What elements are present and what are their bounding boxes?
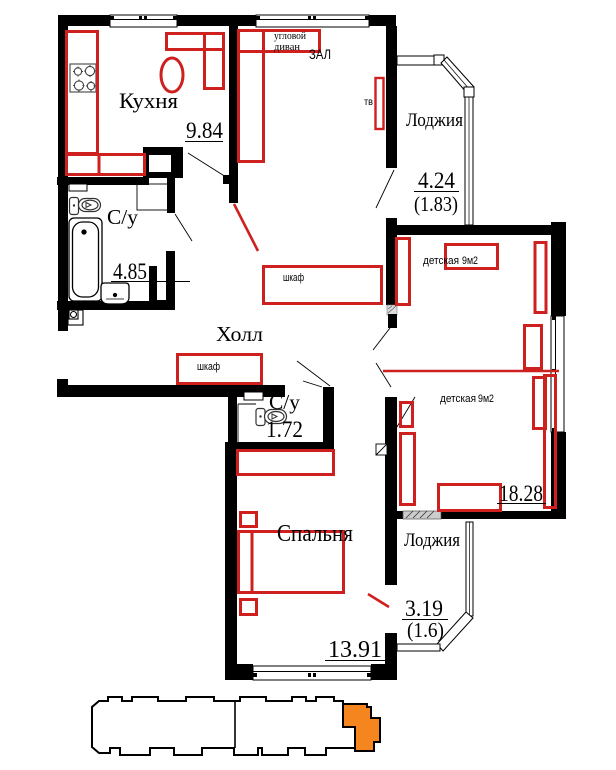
svg-text:(1.6): (1.6)	[407, 618, 444, 642]
svg-text:18.28: 18.28	[499, 481, 543, 506]
svg-text:тв: тв	[364, 97, 373, 108]
svg-text:4.24: 4.24	[418, 168, 455, 193]
svg-text:диван: диван	[274, 41, 300, 53]
svg-text:С/у: С/у	[269, 390, 301, 414]
svg-text:(1.83): (1.83)	[414, 192, 458, 216]
svg-text:Кухня: Кухня	[119, 88, 178, 113]
svg-text:шкаф: шкаф	[197, 361, 220, 373]
svg-text:Лоджия: Лоджия	[406, 110, 463, 131]
svg-text:Лоджия: Лоджия	[404, 530, 460, 551]
svg-text:9.84: 9.84	[186, 118, 223, 143]
svg-text:1.72: 1.72	[266, 417, 303, 442]
svg-text:ЗАЛ: ЗАЛ	[309, 46, 331, 62]
svg-text:С/у: С/у	[107, 205, 139, 229]
svg-text:шкаф: шкаф	[283, 272, 304, 284]
svg-text:детская9м2: детская9м2	[440, 393, 494, 405]
svg-text:Холл: Холл	[216, 322, 263, 346]
svg-text:4.85: 4.85	[113, 259, 147, 284]
svg-text:детская9м2: детская9м2	[423, 255, 478, 267]
svg-text:Спальня: Спальня	[277, 521, 353, 547]
svg-text:13.91: 13.91	[328, 637, 382, 663]
